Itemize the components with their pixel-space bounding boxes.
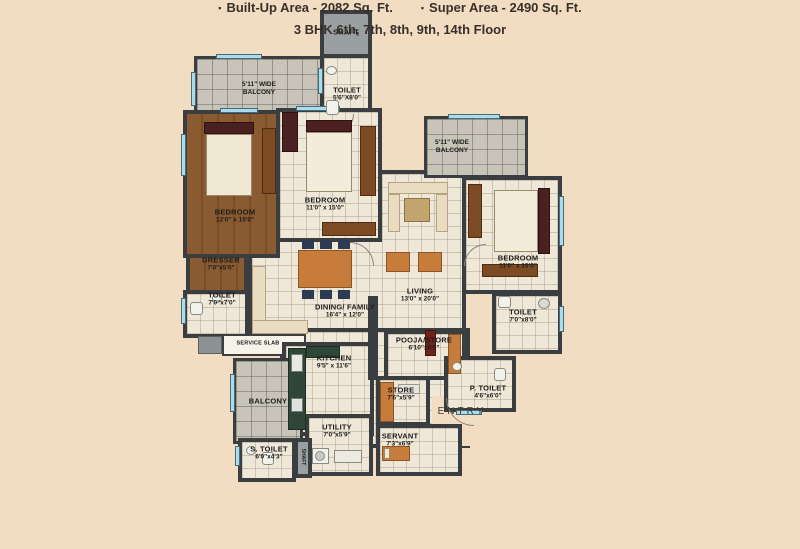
room-label-kitchen: KITCHEN 9'5" x 11'6" bbox=[317, 354, 352, 371]
room-label-pooja: POOJA/STORE 6'10"x6'0" bbox=[396, 336, 452, 353]
room-label-balcony-right: 5'11" WIDE BALCONY bbox=[435, 139, 469, 155]
stove bbox=[291, 354, 303, 372]
dining-table bbox=[298, 250, 352, 288]
dining-chair bbox=[320, 290, 332, 299]
window bbox=[559, 196, 564, 246]
service-ledge bbox=[198, 336, 222, 354]
room-label-bedroom-right: BEDROOM 11'0" x 15'0" bbox=[498, 254, 539, 271]
floors-text: 3 BHK 6th, 7th, 8th, 9th, 14th Floor bbox=[0, 22, 800, 37]
cabinet bbox=[282, 112, 298, 152]
built-up-area: ▪ Built-Up Area - 2082 Sq. Ft. bbox=[218, 0, 393, 15]
toilet-wc bbox=[498, 296, 511, 308]
window bbox=[318, 68, 323, 94]
dining-chair bbox=[338, 290, 350, 299]
dining-chair bbox=[302, 240, 314, 249]
armchair bbox=[386, 252, 410, 272]
room-label-shaft-bottom: SHAFT bbox=[300, 449, 306, 466]
wash-basin bbox=[326, 66, 337, 75]
room-label-bedroom-mid: BEDROOM 11'0" x 15'0" bbox=[305, 196, 346, 213]
pillow bbox=[384, 448, 390, 459]
bed-mattress bbox=[306, 132, 352, 192]
bed-headboard bbox=[306, 120, 352, 132]
armchair bbox=[418, 252, 442, 272]
coffee-table bbox=[404, 198, 430, 222]
bed-headboard bbox=[538, 188, 550, 254]
wash-basin bbox=[452, 362, 462, 371]
room-label-dresser: DRESSER 7'0"x5'0" bbox=[202, 256, 240, 273]
sofa bbox=[252, 266, 266, 326]
area-summary: ▪ Built-Up Area - 2082 Sq. Ft. ▪ Super A… bbox=[0, 0, 800, 15]
room-label-store: STORE 7'6"x5'9" bbox=[387, 386, 414, 403]
room-label-balcony-top: 5'11" WIDE BALCONY bbox=[242, 81, 276, 97]
window bbox=[559, 306, 564, 332]
room-label-balcony-bottom: BALCONY bbox=[249, 397, 287, 406]
built-up-area-text: Built-Up Area - 2082 Sq. Ft. bbox=[226, 0, 392, 15]
bullet-icon: ▪ bbox=[421, 3, 424, 13]
dining-chair bbox=[302, 290, 314, 299]
sofa bbox=[388, 182, 448, 194]
bullet-icon: ▪ bbox=[218, 3, 221, 13]
sofa bbox=[252, 320, 308, 334]
super-area: ▪ Super Area - 2490 Sq. Ft. bbox=[421, 0, 582, 15]
super-area-text: Super Area - 2490 Sq. Ft. bbox=[429, 0, 582, 15]
room-label-toilet-top: TOILET 5'6"X8'0" bbox=[333, 86, 361, 103]
room-label-living: LIVING 13'0" x 20'0" bbox=[401, 287, 439, 304]
bed-mattress bbox=[494, 190, 538, 252]
window bbox=[235, 446, 240, 466]
window bbox=[230, 374, 235, 412]
area-caption: ▪ Built-Up Area - 2082 Sq. Ft. ▪ Super A… bbox=[0, 0, 800, 37]
window bbox=[448, 114, 500, 119]
bed-mattress bbox=[206, 134, 252, 196]
bed-headboard bbox=[204, 122, 254, 134]
cabinet bbox=[468, 184, 482, 238]
room-label-service-slab: SERVICE SLAB bbox=[237, 341, 280, 348]
window bbox=[220, 108, 258, 113]
utility-counter bbox=[334, 450, 362, 463]
wardrobe bbox=[322, 222, 376, 236]
room-label-toilet-left: TOILET 7'0"x7'0" bbox=[208, 291, 236, 308]
room-label-dining: DINING/ FAMILY 16'4" x 12'0" bbox=[315, 303, 375, 320]
kitchen-sink bbox=[291, 398, 303, 412]
toilet-wc bbox=[494, 368, 506, 381]
window bbox=[181, 298, 186, 324]
room-label-entry: ENTRY bbox=[438, 406, 487, 418]
room-label-toilet-right: TOILET 7'0"x8'0" bbox=[509, 308, 537, 325]
room-label-servant: SERVANT 7'3"x6'9" bbox=[382, 432, 419, 449]
wardrobe bbox=[360, 126, 376, 196]
sofa bbox=[436, 194, 448, 232]
dining-chair bbox=[338, 240, 350, 249]
wash-basin bbox=[538, 298, 550, 309]
washing-machine-drum bbox=[315, 451, 325, 461]
floor-plan: SHAFT TOILET 5'6"X8'0" 5'11" WIDE BALCON… bbox=[0, 0, 800, 549]
room-label-utility: UTILITY 7'0"x5'9" bbox=[322, 423, 352, 440]
window bbox=[191, 72, 196, 106]
sofa bbox=[388, 194, 400, 232]
toilet-wc bbox=[190, 302, 203, 315]
room-label-bedroom-left: BEDROOM 12'0" x 15'0" bbox=[215, 208, 256, 225]
room-label-s-toilet: S. TOILET 6'0"x4'3" bbox=[250, 445, 288, 462]
dining-chair bbox=[320, 240, 332, 249]
room-label-p-toilet: P. TOILET 4'6"x6'0" bbox=[470, 384, 507, 401]
window bbox=[216, 54, 262, 59]
wardrobe bbox=[262, 128, 276, 194]
window bbox=[181, 134, 186, 176]
